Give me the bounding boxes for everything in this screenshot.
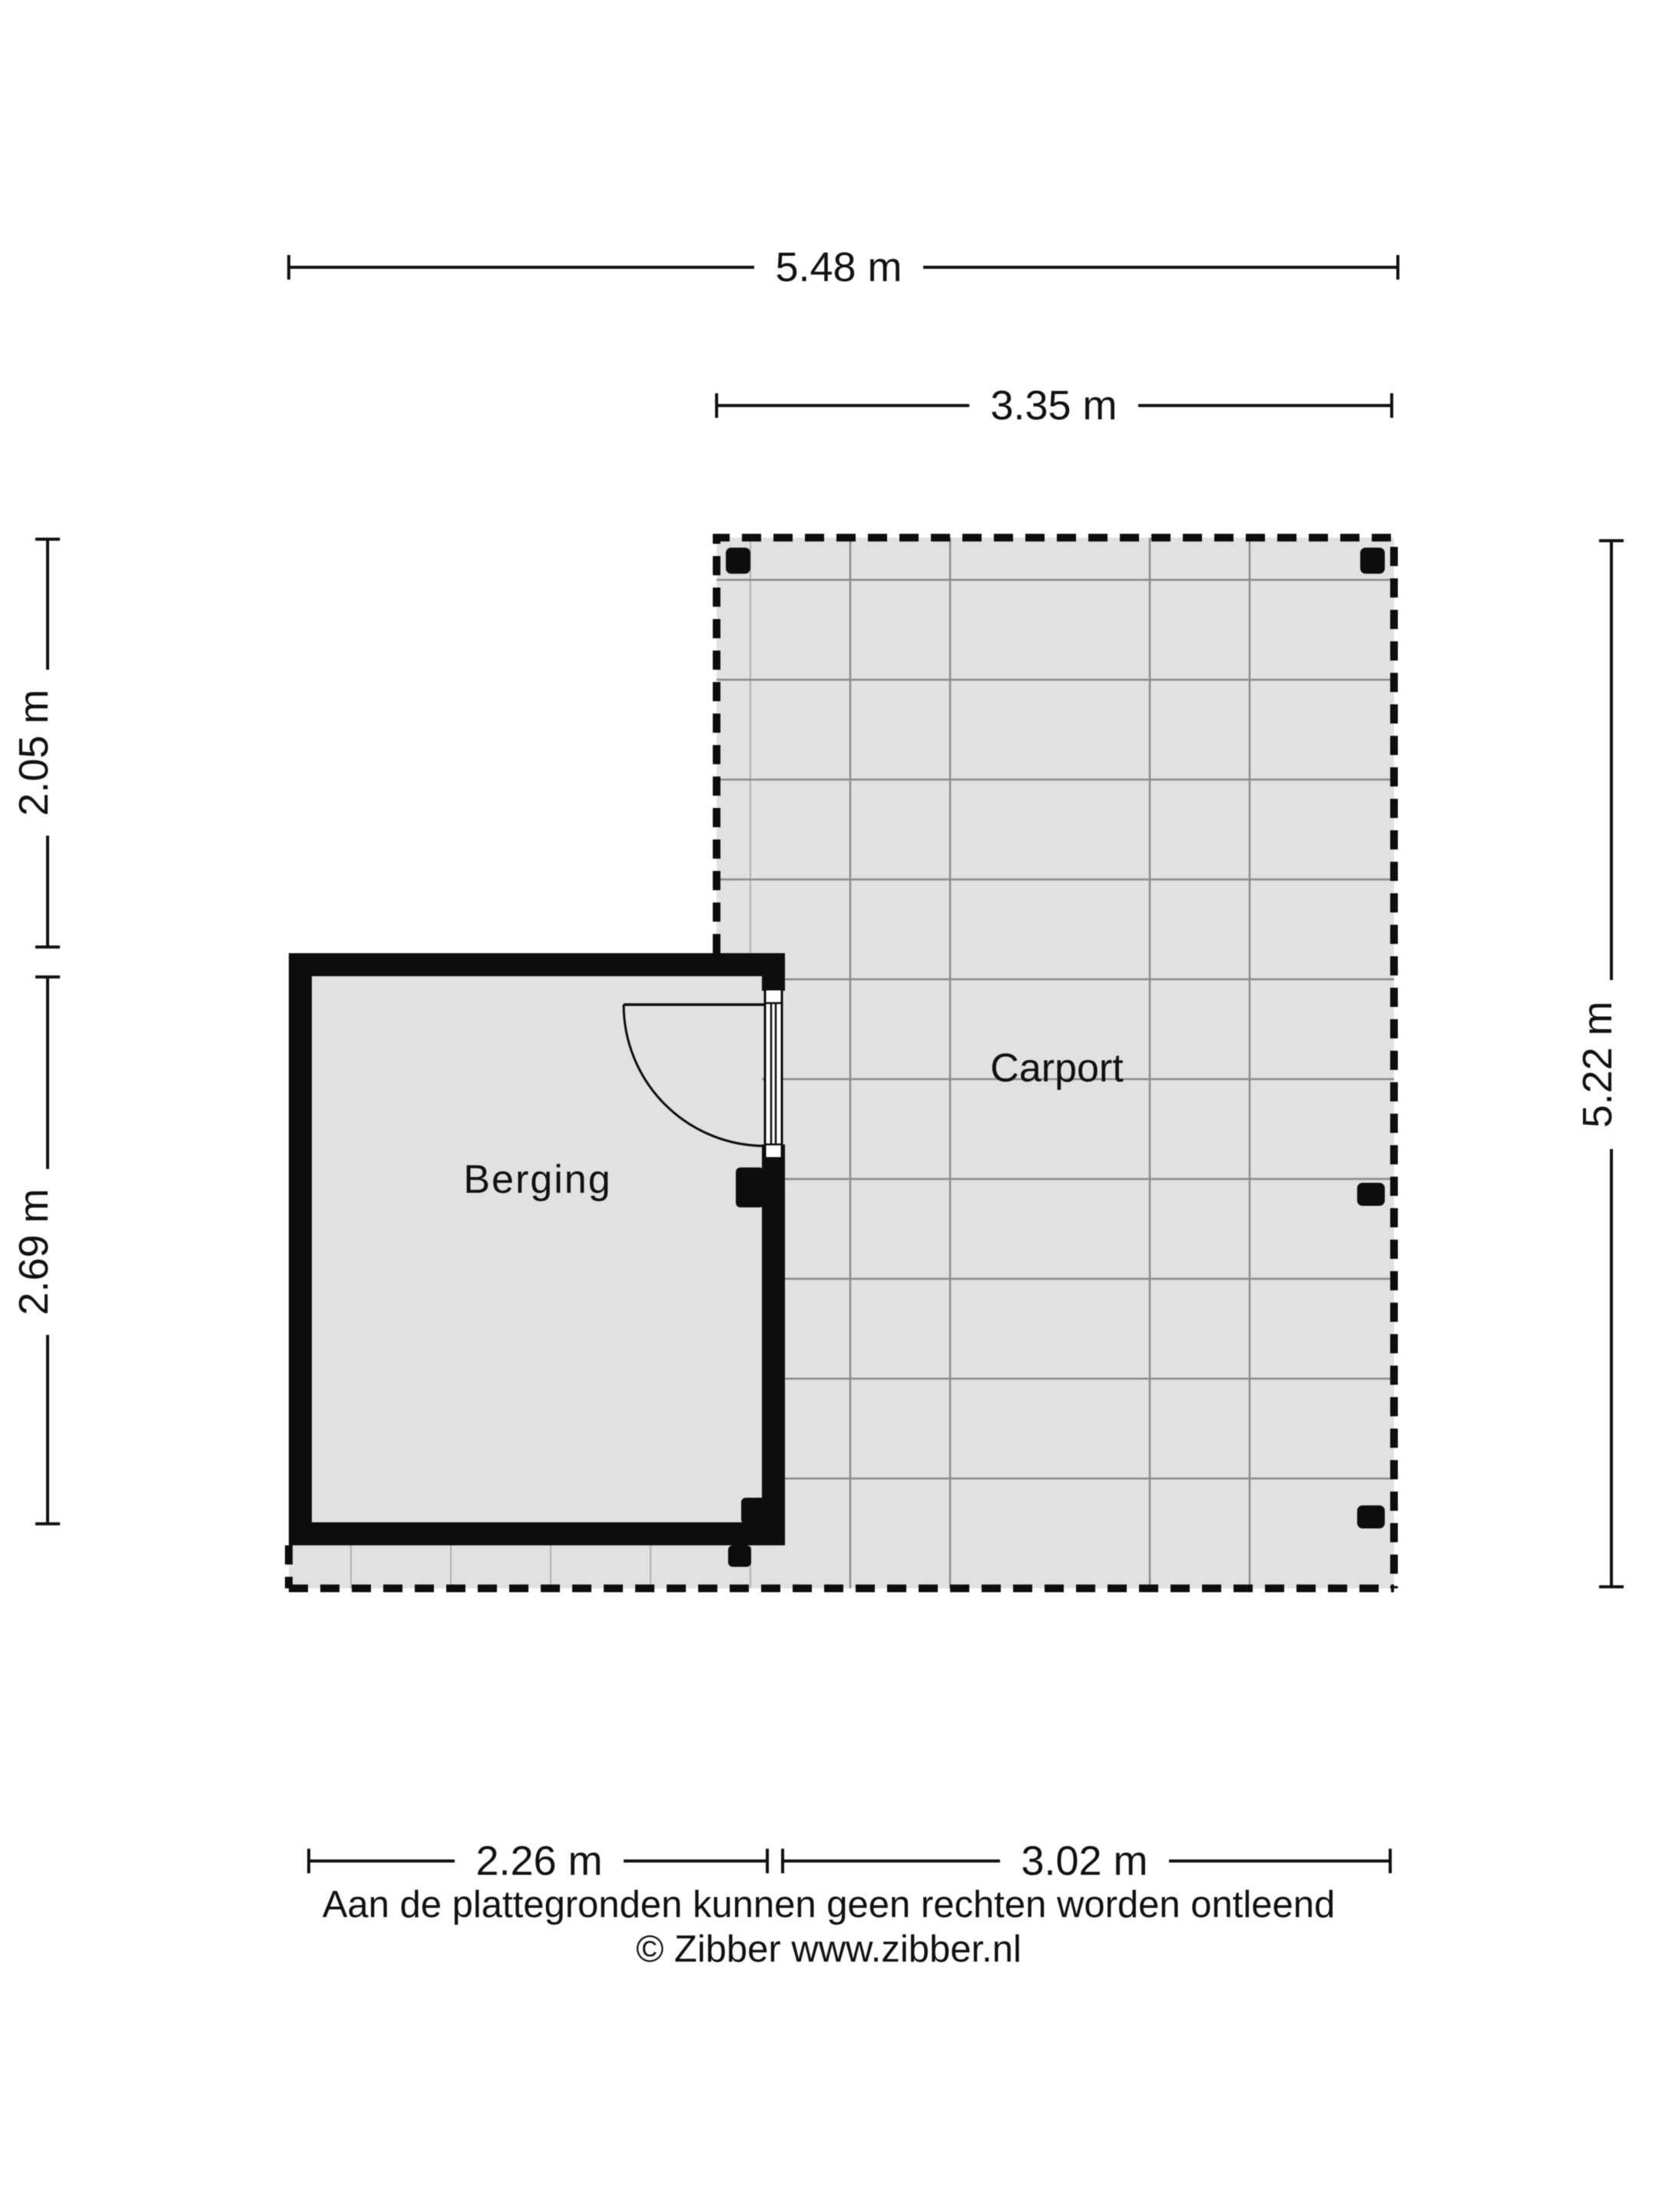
berging-wall-left xyxy=(289,953,312,1545)
berging-wall-bottom xyxy=(289,1522,785,1545)
dimension-bottom-left: 2.26 m xyxy=(309,1838,767,1884)
dimension-top-total: 5.48 m xyxy=(289,244,1398,290)
dimension-label: 5.22 m xyxy=(1575,1001,1621,1128)
dimension-label: 2.69 m xyxy=(11,1188,57,1315)
carport-post xyxy=(1360,548,1385,574)
dimension-label: 3.02 m xyxy=(1021,1838,1147,1884)
floorplan-drawing: Carport Berging 5.48 m 3.35 m 2.05 m 2.6… xyxy=(0,0,1659,2212)
carport-label: Carport xyxy=(990,1046,1124,1091)
door-frame xyxy=(765,989,782,1158)
floorplan-page: Carport Berging 5.48 m 3.35 m 2.05 m 2.6… xyxy=(0,0,1659,2212)
dimension-left-upper: 2.05 m xyxy=(11,539,60,947)
carport-post xyxy=(1357,1505,1385,1528)
carport-post xyxy=(736,1167,764,1207)
dimension-bottom-right: 3.02 m xyxy=(783,1838,1390,1884)
berging-label: Berging xyxy=(463,1157,611,1202)
dimension-label: 5.48 m xyxy=(775,244,902,290)
berging-floor xyxy=(312,976,762,1522)
dimension-label: 3.35 m xyxy=(990,382,1117,429)
berging-wall-right-upper xyxy=(762,953,785,991)
carport-post xyxy=(728,1545,751,1567)
dimension-top-carport: 3.35 m xyxy=(717,382,1392,429)
dimension-label: 2.05 m xyxy=(11,689,57,816)
footer-credit: © Zibber www.zibber.nl xyxy=(636,1929,1022,1970)
terrace-strip-floor xyxy=(289,1545,717,1588)
berging-wall-right-lower xyxy=(762,1144,785,1545)
dimension-right-full: 5.22 m xyxy=(1575,541,1624,1587)
carport-post xyxy=(726,548,750,574)
dimension-label: 2.26 m xyxy=(475,1838,602,1884)
berging-wall-top xyxy=(289,953,785,976)
dimension-left-lower: 2.69 m xyxy=(11,977,60,1524)
footer-disclaimer: Aan de plattegronden kunnen geen rechten… xyxy=(323,1884,1336,1926)
carport-post xyxy=(1357,1183,1385,1206)
carport-post xyxy=(741,1498,767,1524)
berging-room xyxy=(289,953,785,1567)
